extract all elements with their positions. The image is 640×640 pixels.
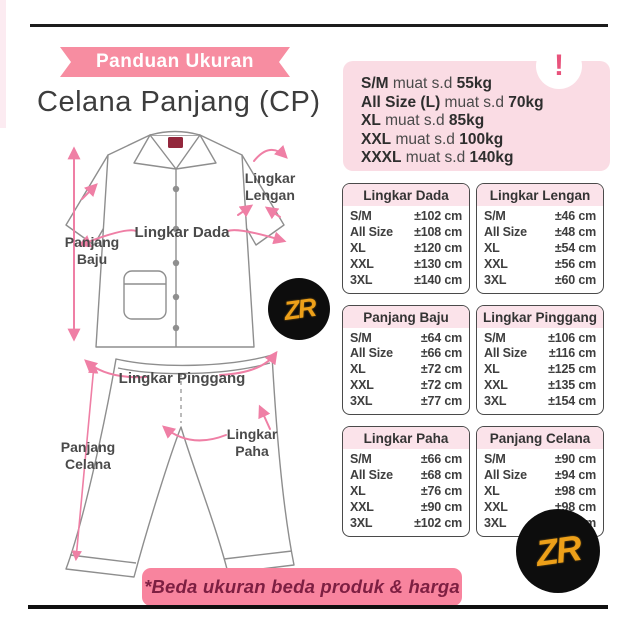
- capacity-row: XL muat s.d 85kg: [361, 112, 610, 131]
- capacity-mid: muat s.d: [401, 149, 469, 166]
- ribbon-label: Panduan Ukuran: [96, 51, 254, 73]
- size-cell: All Size: [350, 225, 393, 241]
- size-table-body: S/M±46 cmAll Size±48 cmXL±54 cmXXL±56 cm…: [477, 206, 603, 293]
- size-cell: 3XL: [484, 273, 506, 289]
- label-panjang-baju-2: Baju: [77, 251, 107, 267]
- brand-logo-bottom-right: ZR: [516, 509, 600, 593]
- value-cell: ±90 cm: [421, 500, 462, 516]
- label-panjang-celana: Panjang: [61, 439, 115, 455]
- table-row: 3XL±102 cm: [343, 516, 469, 532]
- clothing-diagram: Panjang Baju Lingkar Dada Lingkar Lengan…: [30, 125, 330, 610]
- value-cell: ±90 cm: [555, 452, 596, 468]
- size-cell: S/M: [484, 331, 506, 347]
- label-lingkar-paha: Lingkar: [227, 426, 278, 442]
- page-title: Celana Panjang (CP): [37, 86, 321, 119]
- size-cell: XXL: [484, 500, 508, 516]
- size-cell: XXL: [484, 378, 508, 394]
- size-cell: S/M: [484, 209, 506, 225]
- page-edge-tint: [0, 0, 6, 128]
- value-cell: ±154 cm: [548, 394, 596, 410]
- size-cell: XXL: [350, 378, 374, 394]
- value-cell: ±135 cm: [548, 378, 596, 394]
- value-cell: ±94 cm: [555, 468, 596, 484]
- table-row: All Size±94 cm: [477, 468, 603, 484]
- table-row: XL±54 cm: [477, 241, 603, 257]
- size-cell: 3XL: [484, 516, 506, 532]
- value-cell: ±72 cm: [421, 378, 462, 394]
- capacity-mid: muat s.d: [440, 94, 508, 111]
- table-row: S/M±106 cm: [477, 331, 603, 347]
- size-cell: XL: [484, 362, 500, 378]
- size-cell: S/M: [350, 452, 372, 468]
- value-cell: ±140 cm: [414, 273, 462, 289]
- size-cell: XXL: [350, 500, 374, 516]
- value-cell: ±66 cm: [421, 452, 462, 468]
- zr-logo-icon: ZR: [533, 527, 582, 575]
- value-cell: ±120 cm: [414, 241, 462, 257]
- label-lingkar-pinggang: Lingkar Pinggang: [119, 370, 246, 387]
- table-row: XXL±72 cm: [343, 378, 469, 394]
- size-cell: S/M: [350, 209, 372, 225]
- table-row: XXL±135 cm: [477, 378, 603, 394]
- table-row: S/M±46 cm: [477, 209, 603, 225]
- table-row: All Size±108 cm: [343, 225, 469, 241]
- table-row: S/M±102 cm: [343, 209, 469, 225]
- size-table: Lingkar LenganS/M±46 cmAll Size±48 cmXL±…: [476, 183, 604, 294]
- size-cell: XL: [350, 241, 366, 257]
- size-table-title: Panjang Celana: [477, 427, 603, 449]
- table-row: XL±72 cm: [343, 362, 469, 378]
- bottom-divider: [28, 605, 608, 609]
- table-row: XXL±90 cm: [343, 500, 469, 516]
- brand-logo-center: ZR: [268, 278, 330, 340]
- capacity-weight: 70kg: [508, 94, 543, 111]
- size-table: Panjang BajuS/M±64 cmAll Size±66 cmXL±72…: [342, 305, 470, 416]
- capacity-size: XL: [361, 112, 381, 129]
- size-cell: 3XL: [350, 516, 372, 532]
- size-table-title: Lingkar Pinggang: [477, 306, 603, 328]
- label-lingkar-lengan-2: Lengan: [245, 187, 295, 203]
- label-lingkar-dada: Lingkar Dada: [134, 224, 230, 241]
- table-row: 3XL±77 cm: [343, 394, 469, 410]
- capacity-size: XXL: [361, 131, 391, 148]
- size-table-body: S/M±106 cmAll Size±116 cmXL±125 cmXXL±13…: [477, 328, 603, 415]
- size-cell: S/M: [484, 452, 506, 468]
- capacity-size: All Size (L): [361, 94, 440, 111]
- capacity-size: XXXL: [361, 149, 401, 166]
- table-row: 3XL±140 cm: [343, 273, 469, 289]
- table-row: S/M±90 cm: [477, 452, 603, 468]
- value-cell: ±125 cm: [548, 362, 596, 378]
- value-cell: ±106 cm: [548, 331, 596, 347]
- capacity-list: S/M muat s.d 55kgAll Size (L) muat s.d 7…: [361, 75, 610, 168]
- table-row: All Size±66 cm: [343, 346, 469, 362]
- value-cell: ±56 cm: [555, 257, 596, 273]
- table-row: All Size±48 cm: [477, 225, 603, 241]
- table-row: XL±98 cm: [477, 484, 603, 500]
- size-cell: S/M: [350, 331, 372, 347]
- size-cell: XXL: [484, 257, 508, 273]
- value-cell: ±64 cm: [421, 331, 462, 347]
- size-cell: XXL: [350, 257, 374, 273]
- label-panjang-baju: Panjang: [65, 234, 119, 250]
- capacity-row: All Size (L) muat s.d 70kg: [361, 94, 610, 113]
- size-cell: 3XL: [350, 273, 372, 289]
- size-cell: XL: [484, 241, 500, 257]
- capacity-row: XXL muat s.d 100kg: [361, 131, 610, 150]
- footer-note-banner: *Beda ukuran beda produk & harga: [142, 568, 462, 606]
- collar-brand-tag: [168, 137, 183, 148]
- top-divider: [30, 24, 608, 27]
- size-table-body: S/M±66 cmAll Size±68 cmXL±76 cmXXL±90 cm…: [343, 449, 469, 536]
- value-cell: ±68 cm: [421, 468, 462, 484]
- footer-note: *Beda ukuran beda produk & harga: [144, 576, 460, 598]
- value-cell: ±66 cm: [421, 346, 462, 362]
- size-table-title: Lingkar Paha: [343, 427, 469, 449]
- capacity-weight: 85kg: [449, 112, 484, 129]
- size-table-title: Panjang Baju: [343, 306, 469, 328]
- zr-logo-icon: ZR: [282, 292, 317, 327]
- size-cell: 3XL: [484, 394, 506, 410]
- size-tables-grid: Lingkar DadaS/M±102 cmAll Size±108 cmXL±…: [342, 183, 604, 537]
- capacity-mid: muat s.d: [389, 75, 457, 92]
- label-lingkar-paha-2: Paha: [235, 443, 269, 459]
- capacity-weight: 140kg: [470, 149, 514, 166]
- value-cell: ±60 cm: [555, 273, 596, 289]
- capacity-mid: muat s.d: [381, 112, 449, 129]
- size-table-title: Lingkar Lengan: [477, 184, 603, 206]
- table-row: XL±120 cm: [343, 241, 469, 257]
- table-row: S/M±66 cm: [343, 452, 469, 468]
- value-cell: ±130 cm: [414, 257, 462, 273]
- size-table: Lingkar DadaS/M±102 cmAll Size±108 cmXL±…: [342, 183, 470, 294]
- size-table-body: S/M±64 cmAll Size±66 cmXL±72 cmXXL±72 cm…: [343, 328, 469, 415]
- ribbon-banner: Panduan Ukuran: [60, 47, 290, 77]
- table-row: S/M±64 cm: [343, 331, 469, 347]
- capacity-row: XXXL muat s.d 140kg: [361, 149, 610, 168]
- value-cell: ±48 cm: [555, 225, 596, 241]
- table-row: XL±76 cm: [343, 484, 469, 500]
- table-row: XXL±56 cm: [477, 257, 603, 273]
- table-row: 3XL±154 cm: [477, 394, 603, 410]
- size-cell: All Size: [350, 468, 393, 484]
- capacity-weight: 55kg: [457, 75, 492, 92]
- table-row: XL±125 cm: [477, 362, 603, 378]
- table-row: All Size±68 cm: [343, 468, 469, 484]
- value-cell: ±116 cm: [549, 346, 596, 362]
- value-cell: ±98 cm: [555, 484, 596, 500]
- size-cell: All Size: [484, 468, 527, 484]
- size-cell: All Size: [350, 346, 393, 362]
- value-cell: ±76 cm: [421, 484, 462, 500]
- table-row: 3XL±60 cm: [477, 273, 603, 289]
- value-cell: ±54 cm: [555, 241, 596, 257]
- value-cell: ±46 cm: [555, 209, 596, 225]
- size-cell: All Size: [484, 225, 527, 241]
- capacity-weight: 100kg: [459, 131, 503, 148]
- table-row: All Size±116 cm: [477, 346, 603, 362]
- size-cell: XL: [350, 362, 366, 378]
- value-cell: ±77 cm: [421, 394, 462, 410]
- size-table-title: Lingkar Dada: [343, 184, 469, 206]
- size-cell: XL: [484, 484, 500, 500]
- size-table: Lingkar PinggangS/M±106 cmAll Size±116 c…: [476, 305, 604, 416]
- size-table: Lingkar PahaS/M±66 cmAll Size±68 cmXL±76…: [342, 426, 470, 537]
- size-cell: 3XL: [350, 394, 372, 410]
- label-lingkar-lengan: Lingkar: [245, 170, 296, 186]
- size-table-body: S/M±102 cmAll Size±108 cmXL±120 cmXXL±13…: [343, 206, 469, 293]
- size-cell: All Size: [484, 346, 527, 362]
- value-cell: ±102 cm: [414, 209, 462, 225]
- label-panjang-celana-2: Celana: [65, 456, 111, 472]
- value-cell: ±72 cm: [421, 362, 462, 378]
- value-cell: ±108 cm: [414, 225, 462, 241]
- value-cell: ±102 cm: [414, 516, 462, 532]
- size-cell: XL: [350, 484, 366, 500]
- alert-badge: !: [536, 43, 582, 89]
- exclamation-icon: !: [554, 49, 564, 83]
- capacity-size: S/M: [361, 75, 389, 92]
- table-row: XXL±130 cm: [343, 257, 469, 273]
- capacity-mid: muat s.d: [391, 131, 459, 148]
